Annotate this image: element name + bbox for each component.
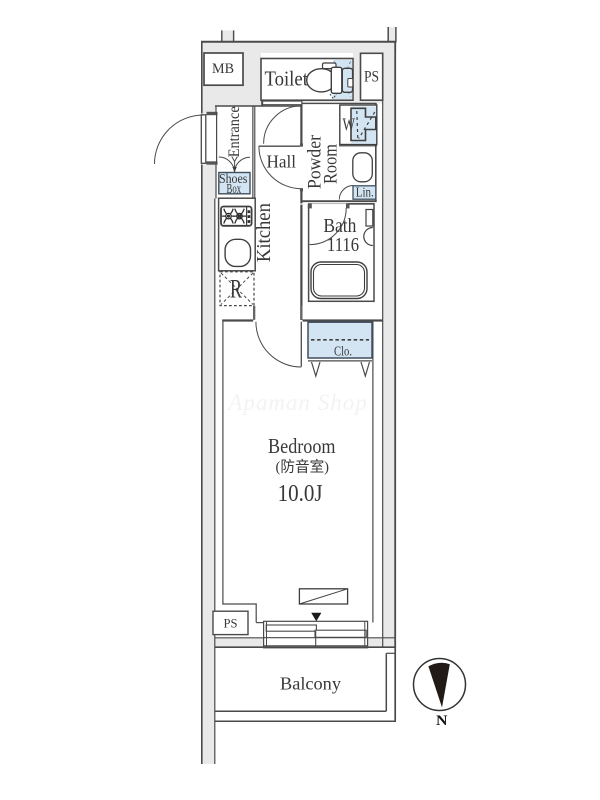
svg-text:PS: PS xyxy=(364,69,379,86)
svg-text:MB: MB xyxy=(212,61,234,77)
svg-text:PS: PS xyxy=(224,615,238,630)
svg-text:R: R xyxy=(230,275,242,304)
svg-text:Hall: Hall xyxy=(267,151,297,171)
svg-text:Toilet: Toilet xyxy=(264,66,308,90)
svg-text:Clo.: Clo. xyxy=(334,344,352,359)
svg-text:1116: 1116 xyxy=(327,234,359,256)
svg-text:10.0J: 10.0J xyxy=(278,480,323,507)
svg-text:Box: Box xyxy=(227,181,242,196)
svg-text:Apaman Shop: Apaman Shop xyxy=(226,390,367,415)
svg-text:Balcony: Balcony xyxy=(280,673,341,693)
svg-text:(防音室): (防音室) xyxy=(276,459,330,476)
svg-text:Bedroom: Bedroom xyxy=(268,434,336,458)
svg-text:Entrance: Entrance xyxy=(226,106,243,157)
svg-text:Kitchen: Kitchen xyxy=(254,203,275,262)
svg-text:Room: Room xyxy=(321,143,341,184)
svg-text:W: W xyxy=(342,115,355,135)
svg-text:N: N xyxy=(436,713,448,729)
svg-text:Lin.: Lin. xyxy=(356,185,374,200)
